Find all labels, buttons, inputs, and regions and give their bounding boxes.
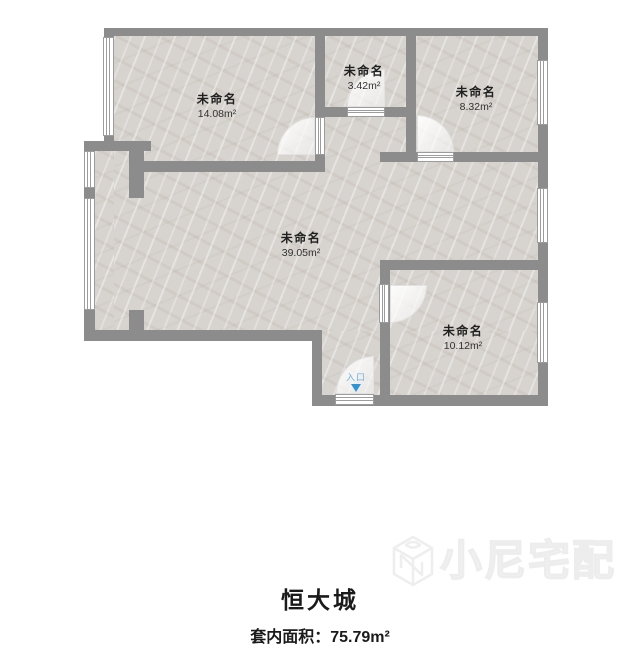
- room-area: 10.12m²: [443, 340, 484, 352]
- window-bay-lower: [84, 198, 95, 310]
- window-right-arm: [537, 188, 548, 243]
- door-leaf-room-top-left: [315, 117, 325, 155]
- door-leaf-entrance: [335, 394, 374, 405]
- room-area: 8.32m²: [456, 101, 497, 113]
- window-room-top-left: [103, 37, 114, 136]
- room-label: 未命名 14.08m²: [197, 90, 238, 120]
- watermark-brand: 小尼宅配: [440, 540, 616, 582]
- room-name: 未命名: [344, 62, 385, 79]
- room-label: 未命名 8.32m²: [456, 83, 497, 113]
- window-room-top-right: [537, 60, 548, 125]
- room-name: 未命名: [197, 90, 238, 107]
- total-area-value: 75.79m²: [330, 629, 390, 646]
- wall-room-top-left-bottom: [129, 161, 325, 172]
- watermark-cube-logo-icon: [392, 535, 434, 587]
- wall-top-outer: [104, 28, 548, 36]
- room-label: 未命名 10.12m²: [443, 322, 484, 352]
- floor-area-main: [114, 36, 538, 331]
- room-name: 未命名: [456, 83, 497, 100]
- wall-room-bottom-right-top: [380, 260, 548, 270]
- wall-stub-lower-left: [129, 310, 144, 341]
- room-area: 3.42m²: [344, 80, 385, 92]
- wall-room-bottom-right-left: [380, 260, 390, 406]
- wall-stub-upper-left: [129, 141, 144, 198]
- plan-total-area: 套内面积：75.79m²: [0, 623, 640, 646]
- room-area: 39.05m²: [281, 247, 322, 259]
- wall-vestibule-left: [312, 330, 322, 406]
- entrance-arrow-icon: [351, 384, 361, 392]
- door-leaf-room-bottom-right: [379, 284, 389, 323]
- room-label: 未命名 3.42m²: [344, 62, 385, 92]
- entrance-label: 入口: [346, 371, 366, 384]
- room-area: 14.08m²: [197, 108, 238, 120]
- door-leaf-room-top-right: [417, 152, 454, 162]
- floor-plan-page: 未命名 14.08m² 未命名 3.42m² 未命名 8.32m² 未命名 39…: [0, 0, 640, 646]
- room-name: 未命名: [443, 322, 484, 339]
- total-area-label: 套内面积：: [250, 629, 330, 646]
- plan-title: 恒大城: [0, 581, 640, 615]
- room-name: 未命名: [281, 229, 322, 246]
- door-leaf-room-top-middle: [347, 107, 385, 117]
- floor-area-bay: [95, 151, 114, 331]
- wall-left-bottom-outer: [84, 330, 322, 341]
- window-bay-upper: [84, 151, 95, 188]
- room-label: 未命名 39.05m²: [281, 229, 322, 259]
- window-room-bottom-right: [537, 302, 548, 363]
- wall-hall-divider: [406, 28, 416, 162]
